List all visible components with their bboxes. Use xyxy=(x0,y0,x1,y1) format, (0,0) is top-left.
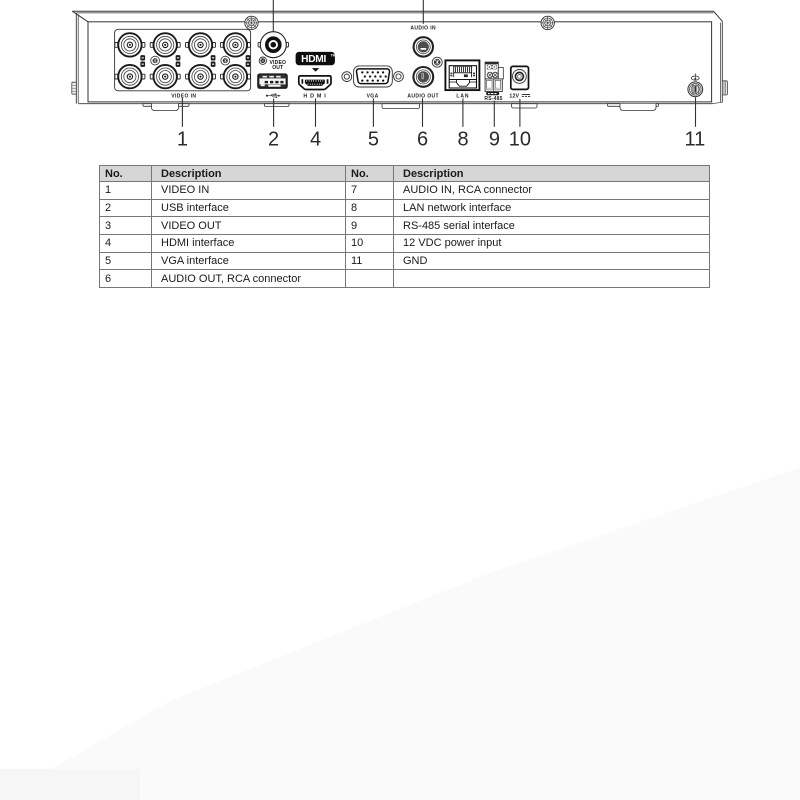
svg-text:HDMI: HDMI xyxy=(301,54,326,65)
svg-text:TM: TM xyxy=(331,54,336,58)
svg-text:11: 11 xyxy=(685,129,706,151)
svg-text:12V: 12V xyxy=(509,93,519,99)
svg-text:OUT: OUT xyxy=(272,65,283,71)
svg-text:9: 9 xyxy=(489,129,500,151)
svg-text:RS-485: RS-485 xyxy=(484,96,502,102)
svg-text:VGA: VGA xyxy=(367,93,379,99)
svg-text:8: 8 xyxy=(457,129,468,151)
svg-text:1: 1 xyxy=(177,129,188,151)
svg-text:2: 2 xyxy=(268,129,279,151)
svg-text:10: 10 xyxy=(509,129,531,151)
svg-text:6: 6 xyxy=(417,129,428,151)
svg-text:VIDEO IN: VIDEO IN xyxy=(171,93,196,99)
svg-text:5: 5 xyxy=(368,129,379,151)
svg-text:AUDIO OUT: AUDIO OUT xyxy=(407,93,439,99)
svg-text:4: 4 xyxy=(310,129,321,151)
svg-text:AUDIO IN: AUDIO IN xyxy=(410,25,436,31)
